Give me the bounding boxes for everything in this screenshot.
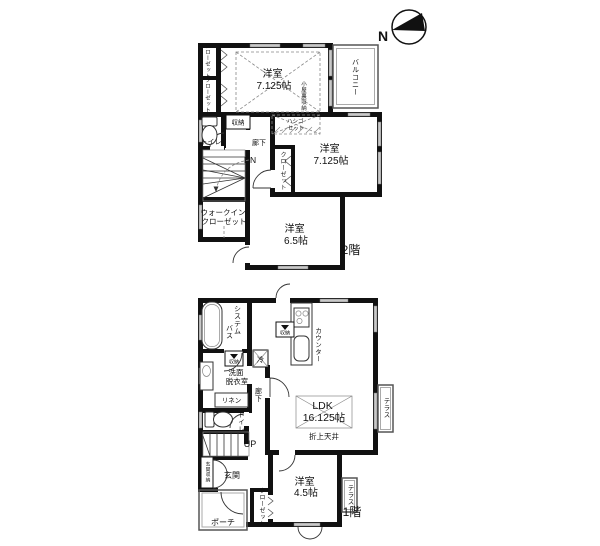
floor2-label: 2階 xyxy=(342,242,361,257)
closet-door-marks-2f-left xyxy=(221,50,227,106)
label-washroom: 洗面 脱衣室 xyxy=(226,367,249,386)
floor-plan-image: N xyxy=(0,0,600,546)
label-bath-2: バス xyxy=(226,325,234,340)
label-closet-2f-a: クローゼット xyxy=(204,43,211,79)
label-walk-in-closet: ウォークイン クローゼット xyxy=(200,208,247,226)
label-toilet-1f: トイレ xyxy=(237,412,245,433)
label-entrance-storage: 玄関収納 xyxy=(205,461,210,484)
label-toilet-2f: トイレ xyxy=(201,139,222,146)
bathtub-fixture xyxy=(202,302,222,349)
label-hallway-2f: 廊下 xyxy=(252,138,266,147)
label-bedroom-2f-bottom: 洋室 6.5帖 xyxy=(284,222,308,247)
floor-plan-canvas: N xyxy=(0,0,600,546)
floor2-plan: 洋室 7.125帖 小屋裏収納 クローゼット クローゼット バルコニー トイレ … xyxy=(198,43,382,270)
label-storage-kitchen: 収納 xyxy=(280,330,290,337)
label-bedroom-2f-right: 洋室 7.125帖 xyxy=(313,142,348,167)
compass: N xyxy=(378,10,426,44)
label-hallway-1f: 廊下 xyxy=(255,387,263,404)
label-storage-wash: 収納 xyxy=(229,359,239,366)
stairs-2f xyxy=(203,150,249,201)
label-ceiling-note: 折上天井 xyxy=(309,431,339,441)
label-attic-storage: 小屋裏収納 xyxy=(300,80,307,112)
label-linen: リネン xyxy=(222,397,242,405)
stairs-1f xyxy=(203,432,249,456)
label-closet-1f: クローゼット xyxy=(258,488,265,527)
closet-door-marks-2f-right xyxy=(285,156,291,186)
sink-fixture xyxy=(294,336,309,361)
label-ladder: ハシゴ セット xyxy=(287,117,305,132)
label-fridge: 冷 xyxy=(257,355,264,364)
label-closet-2f-b: クローゼット xyxy=(204,77,211,113)
label-counter: カウンター xyxy=(314,327,322,362)
label-porch: ポーチ xyxy=(211,518,235,527)
label-bedroom-2f-top: 洋室 7.125帖 xyxy=(256,67,291,92)
floor1-plan: システム バス 収納 収納 冷 洗面 脱衣室 リネン 廊下 トイレ UP 玄関 … xyxy=(198,284,393,539)
toilet-fixture-1f xyxy=(205,412,233,427)
label-stairs-up: UP xyxy=(244,439,257,449)
label-closet-2f-right: クローゼット xyxy=(279,152,286,191)
label-storage-2f: 収納 xyxy=(232,118,245,127)
label-entrance: 玄関 xyxy=(224,470,240,480)
label-balcony: バルコニー xyxy=(352,58,360,96)
label-stairs-dn: DN xyxy=(244,155,256,165)
label-terrace-ldk: テラス xyxy=(382,397,390,418)
label-terrace-bedroom: テラス xyxy=(346,484,354,505)
label-bath-1: システム xyxy=(234,305,242,335)
label-bedroom-1f: 洋室 4.5帖 xyxy=(294,475,318,499)
floor1-label: 1階 xyxy=(343,504,362,519)
compass-north-label: N xyxy=(378,28,388,44)
washbasin-fixture xyxy=(200,362,213,390)
